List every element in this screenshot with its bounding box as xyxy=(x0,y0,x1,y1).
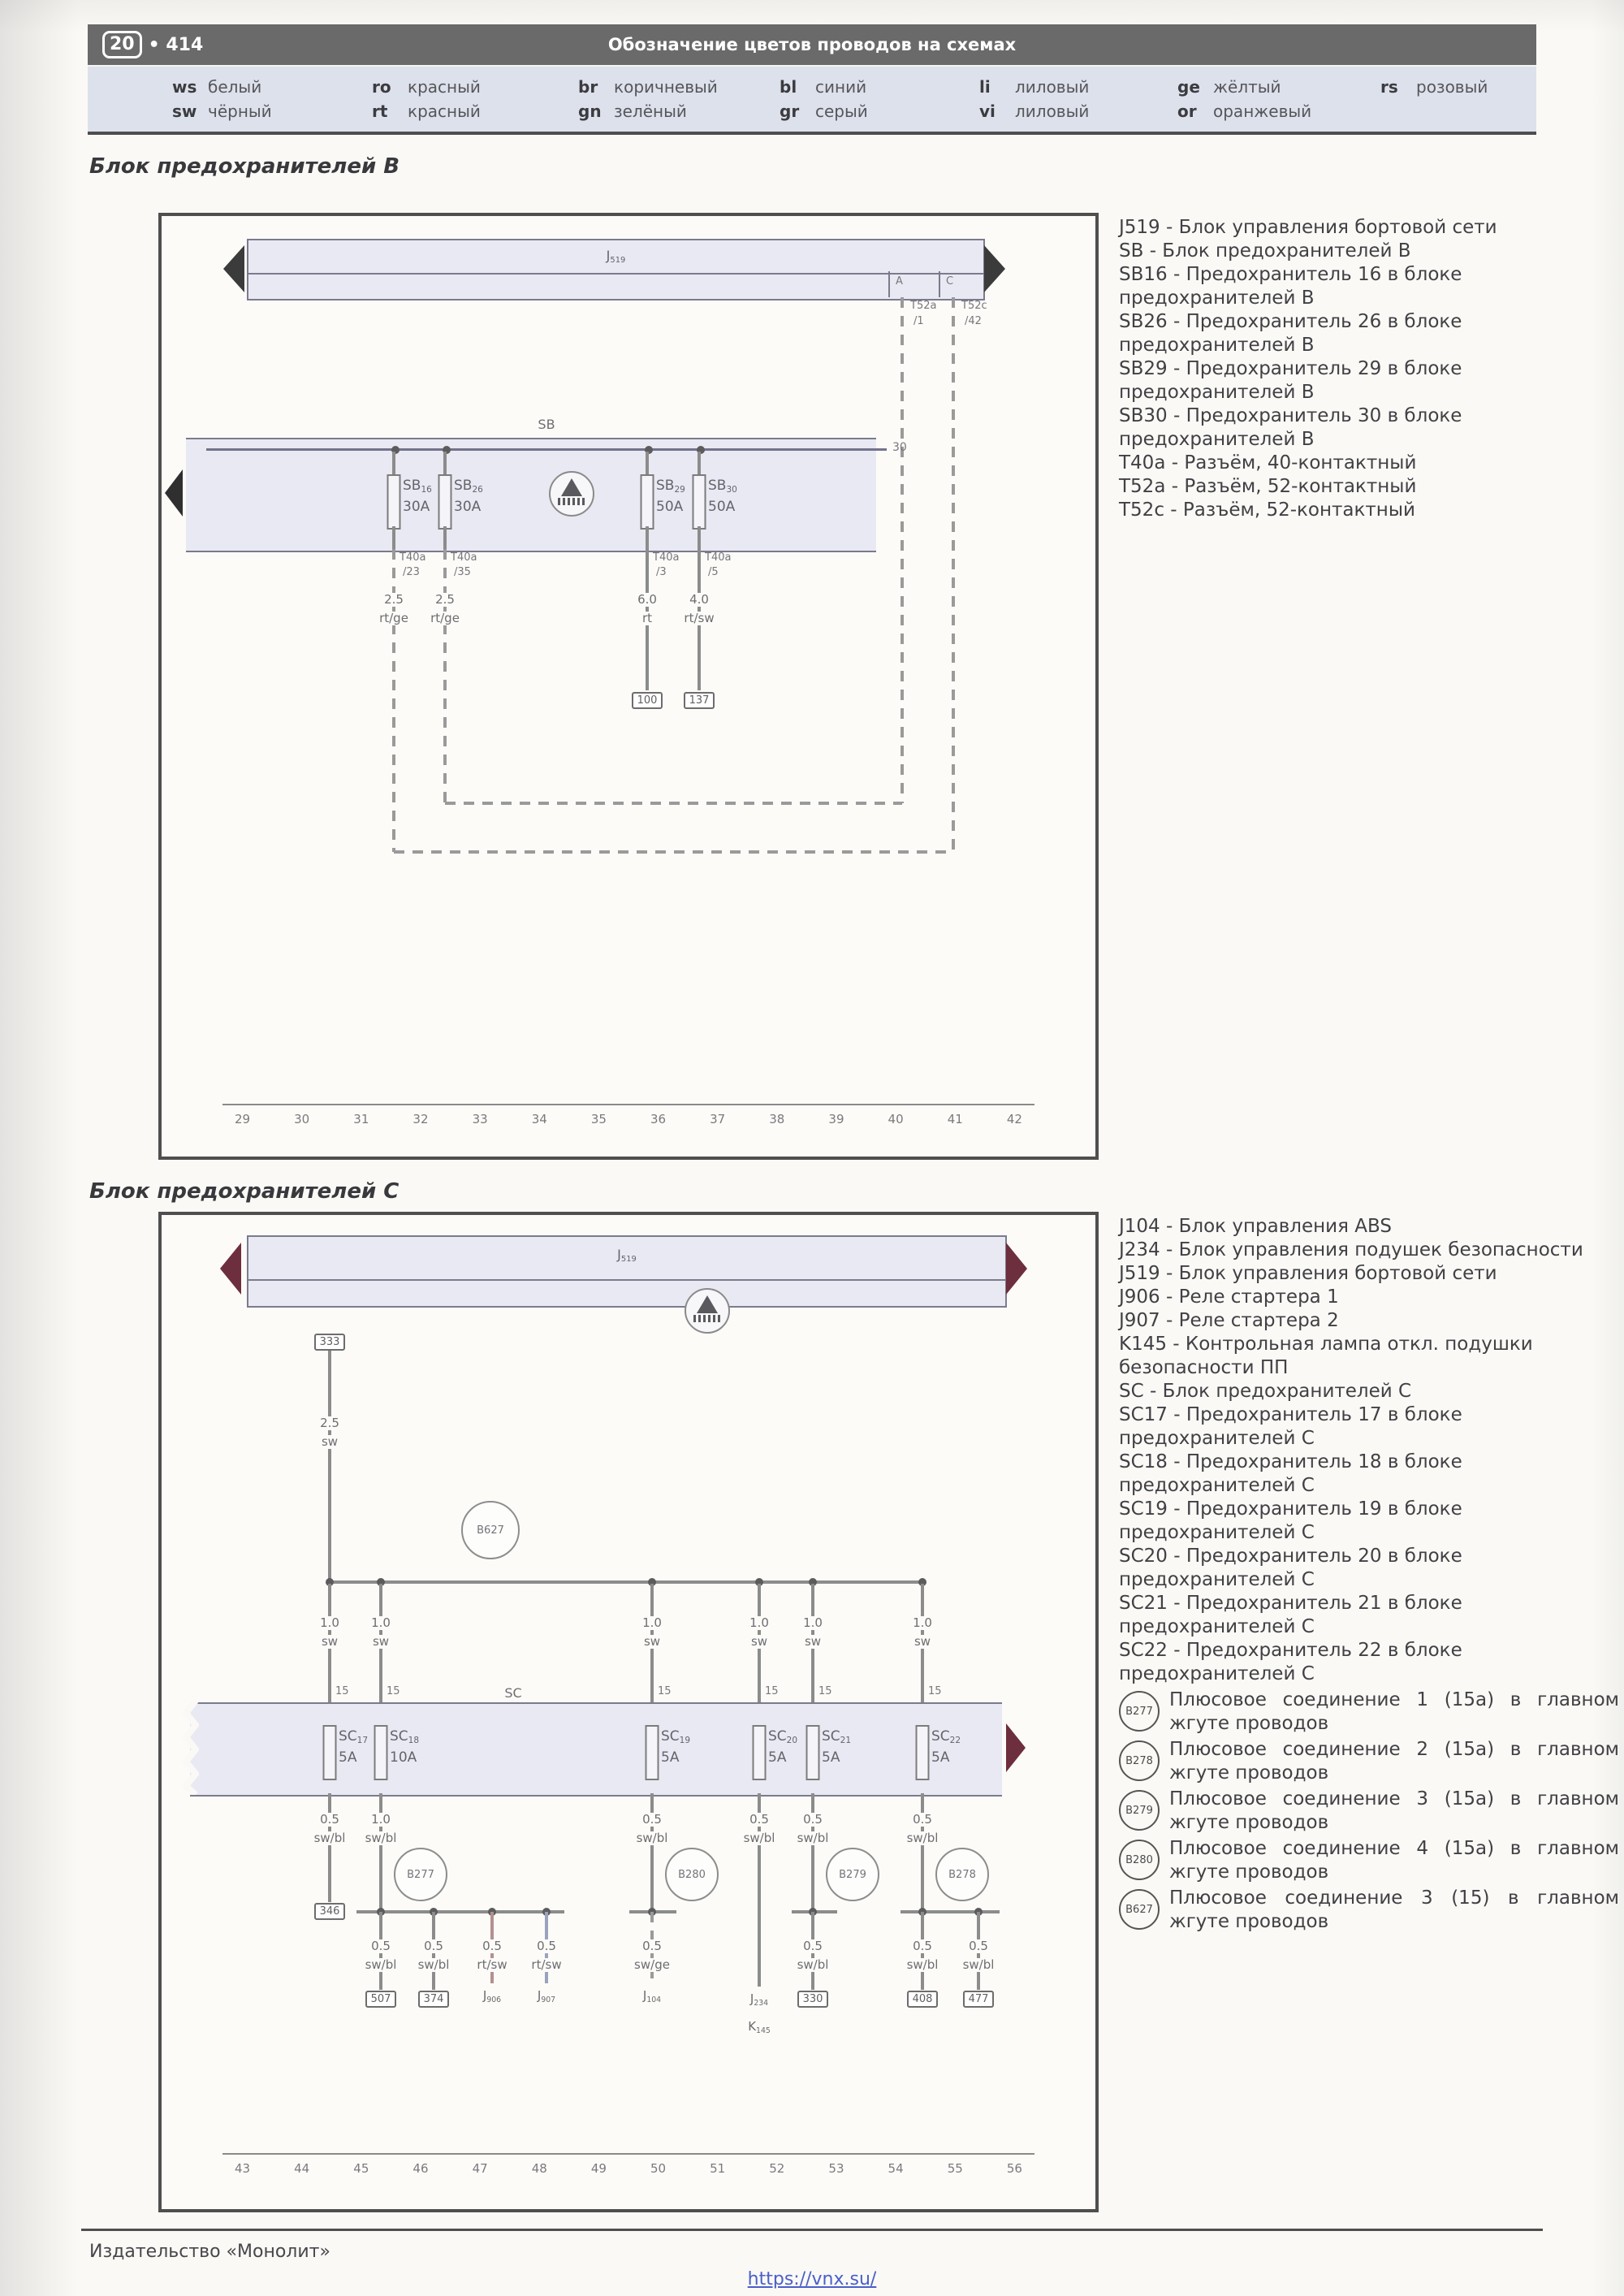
track-number: 31 xyxy=(353,1112,369,1126)
track-numbers: 29 30 31 32 33 34 35 36 37 38 39 40 41 4… xyxy=(235,1112,1022,1126)
legend-plus-item: B627 Плюсовое соединение 3 (15) в главно… xyxy=(1119,1887,1619,1934)
wire-color: sw/bl xyxy=(795,1831,831,1845)
fuse-sc20 xyxy=(753,1725,767,1780)
wire-color-column: wsбелый swчёрный xyxy=(172,75,272,123)
wire-gauge: 0.5 xyxy=(421,1939,446,1953)
track-number: 39 xyxy=(828,1112,844,1126)
bar-divider xyxy=(248,273,983,275)
plus-connection-b279: B279 xyxy=(826,1848,879,1901)
wire xyxy=(445,802,902,805)
wire-gauge: 0.5 xyxy=(966,1939,991,1953)
track-number: 34 xyxy=(532,1112,547,1126)
monolit-logo xyxy=(549,471,594,517)
wire-gauge: 1.0 xyxy=(317,1616,342,1630)
legend-item: SB - Блок предохранителей B xyxy=(1119,240,1619,263)
wire-gauge: 0.5 xyxy=(640,1813,664,1827)
legend-item: SB26 - Предохранитель 26 в блоке предохр… xyxy=(1119,310,1619,357)
plus-connection-desc: Плюсовое соединение 1 (15a) в главном жг… xyxy=(1169,1688,1619,1736)
fuse-amp: 5A xyxy=(931,1751,949,1765)
destination-box: 477 xyxy=(963,1991,994,2008)
wire-color-entry: grсерый xyxy=(780,99,868,123)
destination-box: 346 xyxy=(314,1903,345,1920)
page-title: Обозначение цветов проводов на схемах xyxy=(88,35,1536,54)
wire-color: sw xyxy=(749,1635,770,1649)
j519-label: J519 xyxy=(248,248,983,265)
legend-item: SC18 - Предохранитель 18 в блоке предохр… xyxy=(1119,1451,1619,1498)
fuse-sb30 xyxy=(693,474,706,530)
wire-gauge: 0.5 xyxy=(910,1813,935,1827)
junction-wire xyxy=(901,1910,1000,1913)
legend-item: SB30 - Предохранитель 30 в блоке предохр… xyxy=(1119,404,1619,452)
wire-color: sw xyxy=(370,1635,391,1649)
connector-pin: /35 xyxy=(452,567,473,578)
track-number: 48 xyxy=(532,2161,547,2176)
wire-gauge: 1.0 xyxy=(369,1616,393,1630)
wire-color: rt/ge xyxy=(377,612,411,625)
wire-color: sw xyxy=(319,1435,340,1449)
fuse-label: SC19 xyxy=(661,1730,690,1745)
wire xyxy=(952,297,955,852)
wire-color-column: rsрозовый xyxy=(1380,75,1488,99)
wire-color: sw/bl xyxy=(905,1958,941,1972)
wire xyxy=(328,1351,331,1582)
fuse-id: SC xyxy=(661,1728,680,1745)
wire-color-entry: rtкрасный xyxy=(372,99,481,123)
wire-color-entry: blсиний xyxy=(780,75,868,99)
wire-gauge: 0.5 xyxy=(640,1939,664,1953)
fuse-box-c-diagram: J519 333 2.5 sw B627 1.0 sw 1.0 sw 1.0 s… xyxy=(158,1212,1099,2212)
connector-pin: /3 xyxy=(654,567,668,578)
wire-color: sw/bl xyxy=(634,1831,671,1845)
connector-label: T40a xyxy=(703,552,732,564)
cell-a-label: A xyxy=(894,276,905,288)
cell-divider xyxy=(888,271,890,297)
fuse-amp: 5A xyxy=(339,1751,356,1765)
fuse-sc18 xyxy=(374,1725,388,1780)
fuse-num: 17 xyxy=(357,1736,368,1745)
logo-triangle xyxy=(697,1295,718,1313)
connector-label: T52a xyxy=(909,301,938,312)
fuse-label: SC22 xyxy=(931,1730,961,1745)
wire-gauge: 0.5 xyxy=(801,1813,825,1827)
wire-gauge: 2.5 xyxy=(433,593,457,607)
fuse-num: 20 xyxy=(787,1736,797,1745)
wire-color-legend: wsбелый swчёрный roкрасный rtкрасный brк… xyxy=(88,65,1536,135)
track-number: 41 xyxy=(948,1112,963,1126)
component-number: 906 xyxy=(486,1995,501,2004)
track-ruler xyxy=(222,1104,1034,1105)
legend-item: SC19 - Предохранитель 19 в блоке предохр… xyxy=(1119,1498,1619,1545)
destination-box: 100 xyxy=(632,692,663,709)
fuse-id: SC xyxy=(768,1728,787,1745)
wire-color: sw/bl xyxy=(905,1831,941,1845)
section-b-title: Блок предохранителей B xyxy=(89,154,400,179)
cell-c-label: C xyxy=(944,276,955,288)
wire xyxy=(443,452,447,474)
wire-gauge: 1.0 xyxy=(747,1616,771,1630)
wire-gauge: 1.0 xyxy=(910,1616,935,1630)
legend-plus-item: B279 Плюсовое соединение 3 (15a) в главн… xyxy=(1119,1788,1619,1835)
component-number: 104 xyxy=(646,1995,661,2004)
fuse-box-b-diagram: J519 A C T52a /1 T52c /42 SB 30 SB16 30A xyxy=(158,213,1099,1160)
track-number: 33 xyxy=(473,1112,488,1126)
color-name: оранжевый xyxy=(1213,99,1311,123)
wire-color-column: blсиний grсерый xyxy=(780,75,868,123)
destination-box: 137 xyxy=(684,692,715,709)
plus-connection-desc: Плюсовое соединение 3 (15a) в главном жг… xyxy=(1169,1788,1619,1835)
connector-pin: /5 xyxy=(706,567,720,578)
harness-arrow-left-icon xyxy=(223,245,244,292)
fuse-sb16 xyxy=(387,474,401,530)
sb-label: SB xyxy=(535,417,557,432)
component-number: 519 xyxy=(621,1255,637,1264)
plus-connection-b277: B277 xyxy=(394,1848,447,1901)
pin-15: 15 xyxy=(656,1686,673,1697)
legend-item: J519 - Блок управления бортовой сети xyxy=(1119,1262,1619,1286)
component-j907: J907 xyxy=(536,1988,557,2004)
fuse-sc17 xyxy=(323,1725,337,1780)
color-code: bl xyxy=(780,75,815,99)
fuse-amp: 5A xyxy=(822,1751,840,1765)
fuse-amp: 50A xyxy=(656,500,683,514)
wire-color-entry: viлиловый xyxy=(979,99,1089,123)
legend-item: T40a - Разъём, 40-контактный xyxy=(1119,452,1619,475)
wire-gauge: 0.5 xyxy=(910,1939,935,1953)
legend-item: SB29 - Предохранитель 29 в блоке предохр… xyxy=(1119,357,1619,404)
wire-color-entry: orоранжевый xyxy=(1177,99,1311,123)
component-j104: J104 xyxy=(641,1988,663,2004)
wire-gauge: 4.0 xyxy=(687,593,711,607)
track-number: 42 xyxy=(1007,1112,1022,1126)
legend-item: SC21 - Предохранитель 21 в блоке предохр… xyxy=(1119,1592,1619,1639)
track-number: 53 xyxy=(828,2161,844,2176)
color-name: красный xyxy=(408,99,481,123)
wire-gauge: 0.5 xyxy=(747,1813,771,1827)
component-number: 234 xyxy=(754,1999,768,2008)
bus-wire xyxy=(328,1580,926,1584)
track-number: 49 xyxy=(591,2161,607,2176)
color-code: rt xyxy=(372,99,408,123)
fuse-num: 30 xyxy=(726,485,736,495)
wire-color: sw/bl xyxy=(961,1958,997,1972)
wire-color: rt/sw xyxy=(529,1958,564,1972)
fuse-amp: 5A xyxy=(661,1751,679,1765)
fuse-label: SB26 xyxy=(454,479,483,495)
track-number: 54 xyxy=(888,2161,904,2176)
color-name: чёрный xyxy=(208,99,272,123)
fuse-label: SC18 xyxy=(390,1730,419,1745)
cell-divider xyxy=(939,271,940,297)
track-number: 47 xyxy=(473,2161,488,2176)
wire xyxy=(443,526,447,549)
band-break-mark xyxy=(183,1701,199,1795)
plus-connection-badge: B277 xyxy=(1119,1691,1160,1732)
legend-item: J234 - Блок управления подушек безопасно… xyxy=(1119,1239,1619,1262)
wire-color: sw xyxy=(319,1635,340,1649)
pin-15: 15 xyxy=(385,1686,402,1697)
logo-triangle xyxy=(561,478,582,496)
track-number: 50 xyxy=(650,2161,666,2176)
wire xyxy=(698,526,701,549)
destination-box: 408 xyxy=(907,1991,938,2008)
wire xyxy=(901,297,904,803)
sc-label: SC xyxy=(502,1686,524,1701)
bar-divider xyxy=(248,1279,1005,1281)
connector-label: T40a xyxy=(449,552,478,564)
color-name: коричневый xyxy=(614,75,718,99)
wire-color: rt xyxy=(640,612,654,625)
fuse-id: SC xyxy=(339,1728,357,1745)
harness-arrow-right-icon xyxy=(1006,1243,1027,1295)
wire xyxy=(328,1793,331,1902)
fuse-num: 21 xyxy=(840,1736,851,1745)
color-name: красный xyxy=(408,75,481,99)
wire-gauge: 0.5 xyxy=(480,1939,504,1953)
fuse-amp: 30A xyxy=(454,500,481,514)
wire-color: sw xyxy=(912,1635,933,1649)
legend-item: SC17 - Предохранитель 17 в блоке предохр… xyxy=(1119,1403,1619,1451)
legend-item: J906 - Реле стартера 1 xyxy=(1119,1286,1619,1309)
plus-connection-b280: B280 xyxy=(665,1848,719,1901)
fuse-sb29 xyxy=(641,474,654,530)
fuse-id: SC xyxy=(931,1728,950,1745)
legend-item: SB16 - Предохранитель 16 в блоке предохр… xyxy=(1119,263,1619,310)
legend-item: SC20 - Предохранитель 20 в блоке предохр… xyxy=(1119,1545,1619,1592)
fuse-sc21 xyxy=(806,1725,820,1780)
wire-color-column: geжёлтый orоранжевый xyxy=(1177,75,1311,123)
page-header-bar: 20 • 414 Обозначение цветов проводов на … xyxy=(88,24,1536,65)
j519-bus-bar: J519 xyxy=(247,239,985,301)
terminal-30-label: 30 xyxy=(891,442,909,454)
legend-item: T52a - Разъём, 52-контактный xyxy=(1119,475,1619,499)
publisher: Издательство «Монолит» xyxy=(89,2242,330,2262)
wire xyxy=(392,452,395,474)
pin-15: 15 xyxy=(926,1686,944,1697)
connector-label: T52c xyxy=(960,301,989,312)
fuse-id: SB xyxy=(454,478,472,494)
color-name: серый xyxy=(815,99,868,123)
legend-item: J519 - Блок управления бортовой сети xyxy=(1119,216,1619,240)
fuse-id: SB xyxy=(403,478,421,494)
wire-gauge: 2.5 xyxy=(382,593,406,607)
legend-c: J104 - Блок управления ABS J234 - Блок у… xyxy=(1119,1215,1619,1934)
wire-color-entry: swчёрный xyxy=(172,99,272,123)
fuse-label: SC20 xyxy=(768,1730,797,1745)
track-number: 45 xyxy=(353,2161,369,2176)
component-number: 519 xyxy=(610,256,625,265)
color-code: br xyxy=(578,75,614,99)
color-code: li xyxy=(979,75,1015,99)
fuse-num: 16 xyxy=(421,485,431,495)
track-number: 40 xyxy=(888,1112,904,1126)
wire-color-column: brкоричневый gnзелёный xyxy=(578,75,718,123)
pin-15: 15 xyxy=(334,1686,351,1697)
track-number: 51 xyxy=(710,2161,725,2176)
track-number: 44 xyxy=(294,2161,309,2176)
track-number: 29 xyxy=(235,1112,250,1126)
wire-color-column: liлиловый viлиловый xyxy=(979,75,1089,123)
wire-color-column: roкрасный rtкрасный xyxy=(372,75,481,123)
destination-box: 333 xyxy=(314,1334,345,1351)
wire-gauge: 2.5 xyxy=(317,1416,342,1430)
band-arrow-right-icon xyxy=(1006,1723,1026,1772)
site-link[interactable]: https://vnx.su/ xyxy=(0,2269,1624,2290)
connector-pin: /23 xyxy=(401,567,421,578)
fuse-id: SB xyxy=(656,478,674,494)
wire xyxy=(394,850,953,854)
component-j906: J906 xyxy=(482,1988,503,2004)
wire-color: sw xyxy=(641,1635,663,1649)
plus-connection-desc: Плюсовое соединение 3 (15) в главном жгу… xyxy=(1169,1887,1619,1934)
harness-arrow-right-icon xyxy=(984,245,1005,292)
track-number: 52 xyxy=(769,2161,784,2176)
plus-connection-badge: B279 xyxy=(1119,1790,1160,1831)
wire-color-entry: rsрозовый xyxy=(1380,75,1488,99)
band-arrow-left-icon xyxy=(165,469,183,517)
track-number: 46 xyxy=(412,2161,428,2176)
destination-box: 330 xyxy=(797,1991,828,2008)
wire-color: rt/ge xyxy=(428,612,462,625)
wire xyxy=(646,526,649,549)
fuse-sc22 xyxy=(916,1725,930,1780)
plus-connection-badge: B278 xyxy=(1119,1740,1160,1781)
component-letter: K xyxy=(748,2019,756,2034)
wire xyxy=(443,549,447,803)
wire-color: sw/bl xyxy=(795,1958,831,1972)
plus-connection-b627: B627 xyxy=(461,1501,520,1559)
wire-color-entry: brкоричневый xyxy=(578,75,718,99)
wire-gauge: 1.0 xyxy=(801,1616,825,1630)
fuse-label: SB30 xyxy=(708,479,737,495)
junction-wire xyxy=(356,1910,564,1913)
color-code: or xyxy=(1177,99,1213,123)
wire-gauge: 6.0 xyxy=(635,593,659,607)
wire-color: sw/bl xyxy=(741,1831,778,1845)
color-name: лиловый xyxy=(1015,99,1089,123)
connector-pin: /42 xyxy=(963,316,983,327)
track-number: 38 xyxy=(769,1112,784,1126)
wire-color-entry: wsбелый xyxy=(172,75,272,99)
legend-item: SC - Блок предохранителей C xyxy=(1119,1380,1619,1403)
fuse-amp: 30A xyxy=(403,500,430,514)
fuse-label: SB16 xyxy=(403,479,432,495)
track-number: 56 xyxy=(1007,2161,1022,2176)
wire-color-entry: gnзелёный xyxy=(578,99,718,123)
manual-page: 20 • 414 Обозначение цветов проводов на … xyxy=(0,0,1624,2296)
plus-connection-b278: B278 xyxy=(935,1848,989,1901)
logo-bars xyxy=(693,1315,721,1322)
wire-color: sw/bl xyxy=(363,1958,400,1972)
color-code: ws xyxy=(172,75,208,99)
fuse-sb26 xyxy=(438,474,452,530)
fuse-amp: 50A xyxy=(708,500,735,514)
color-code: gn xyxy=(578,99,614,123)
plus-connection-desc: Плюсовое соединение 2 (15a) в главном жг… xyxy=(1169,1738,1619,1785)
track-number: 43 xyxy=(235,2161,250,2176)
fuse-num: 26 xyxy=(472,485,482,495)
wire-color: sw/bl xyxy=(416,1958,452,1972)
color-code: vi xyxy=(979,99,1015,123)
footer-rule xyxy=(81,2229,1543,2231)
wire-color-entry: liлиловый xyxy=(979,75,1089,99)
track-number: 32 xyxy=(412,1112,428,1126)
legend-item: SC22 - Предохранитель 22 в блоке предохр… xyxy=(1119,1639,1619,1686)
pin-15: 15 xyxy=(763,1686,780,1697)
fuse-sc19 xyxy=(646,1725,659,1780)
wire-gauge: 0.5 xyxy=(317,1813,342,1827)
wire-gauge: 0.5 xyxy=(801,1939,825,1953)
fuse-label: SC17 xyxy=(339,1730,368,1745)
track-number: 36 xyxy=(650,1112,666,1126)
sb-fuse-band xyxy=(186,438,876,552)
legend-b: J519 - Блок управления бортовой сети SB … xyxy=(1119,216,1619,522)
track-numbers: 43 44 45 46 47 48 49 50 51 52 53 54 55 5… xyxy=(235,2161,1022,2176)
sc-fuse-band xyxy=(190,1702,1002,1797)
component-number: 907 xyxy=(541,1995,555,2004)
j519-label: J519 xyxy=(248,1247,1005,1264)
fuse-label: SB29 xyxy=(656,479,685,495)
color-name: белый xyxy=(208,75,261,99)
wire xyxy=(646,452,649,474)
wire xyxy=(379,1793,382,1912)
wire-gauge: 1.0 xyxy=(369,1813,393,1827)
plus-connection-badge: B280 xyxy=(1119,1840,1160,1880)
connector-label: T40a xyxy=(398,552,427,564)
color-name: зелёный xyxy=(614,99,687,123)
legend-item: J907 - Реле стартера 2 xyxy=(1119,1309,1619,1333)
fuse-id: SC xyxy=(822,1728,840,1745)
track-number: 55 xyxy=(948,2161,963,2176)
wire-gauge: 1.0 xyxy=(640,1616,664,1630)
legend-item: K145 - Контрольная лампа откл. подушки б… xyxy=(1119,1333,1619,1380)
fuse-id: SC xyxy=(390,1728,408,1745)
track-ruler xyxy=(222,2153,1034,2155)
destination-box: 374 xyxy=(418,1991,449,2008)
plus-connection-badge: B627 xyxy=(1119,1889,1160,1930)
color-name: жёлтый xyxy=(1213,75,1281,99)
wire-color: rt/sw xyxy=(681,612,716,625)
color-name: синий xyxy=(815,75,866,99)
logo-bars xyxy=(558,498,585,505)
destination-box: 507 xyxy=(365,1991,396,2008)
fuse-label: SC21 xyxy=(822,1730,851,1745)
track-number: 30 xyxy=(294,1112,309,1126)
wire-color: sw xyxy=(802,1635,823,1649)
component-j234: J234 xyxy=(749,1991,770,2008)
wire-color: rt/sw xyxy=(474,1958,509,1972)
track-number: 35 xyxy=(591,1112,607,1126)
fuse-amp: 10A xyxy=(390,1751,417,1765)
wire-color: sw/ge xyxy=(632,1958,672,1972)
component-k145: K145 xyxy=(746,2019,772,2035)
wire-color-entry: geжёлтый xyxy=(1177,75,1311,99)
color-code: ro xyxy=(372,75,408,99)
plus-connection-desc: Плюсовое соединение 4 (15a) в главном жг… xyxy=(1169,1837,1619,1884)
harness-arrow-left-icon xyxy=(220,1243,241,1295)
monolit-logo xyxy=(685,1288,730,1334)
wire-gauge: 0.5 xyxy=(369,1939,393,1953)
fuse-num: 22 xyxy=(950,1736,961,1745)
color-name: розовый xyxy=(1416,75,1488,99)
fuse-id: SB xyxy=(708,478,726,494)
terminal-30-bus xyxy=(206,448,887,451)
color-code: sw xyxy=(172,99,208,123)
wire-gauge: 0.5 xyxy=(534,1939,559,1953)
wire xyxy=(650,1793,654,1912)
wire-color-entry: roкрасный xyxy=(372,75,481,99)
wire xyxy=(392,526,395,549)
wire-color: sw/bl xyxy=(363,1831,400,1845)
